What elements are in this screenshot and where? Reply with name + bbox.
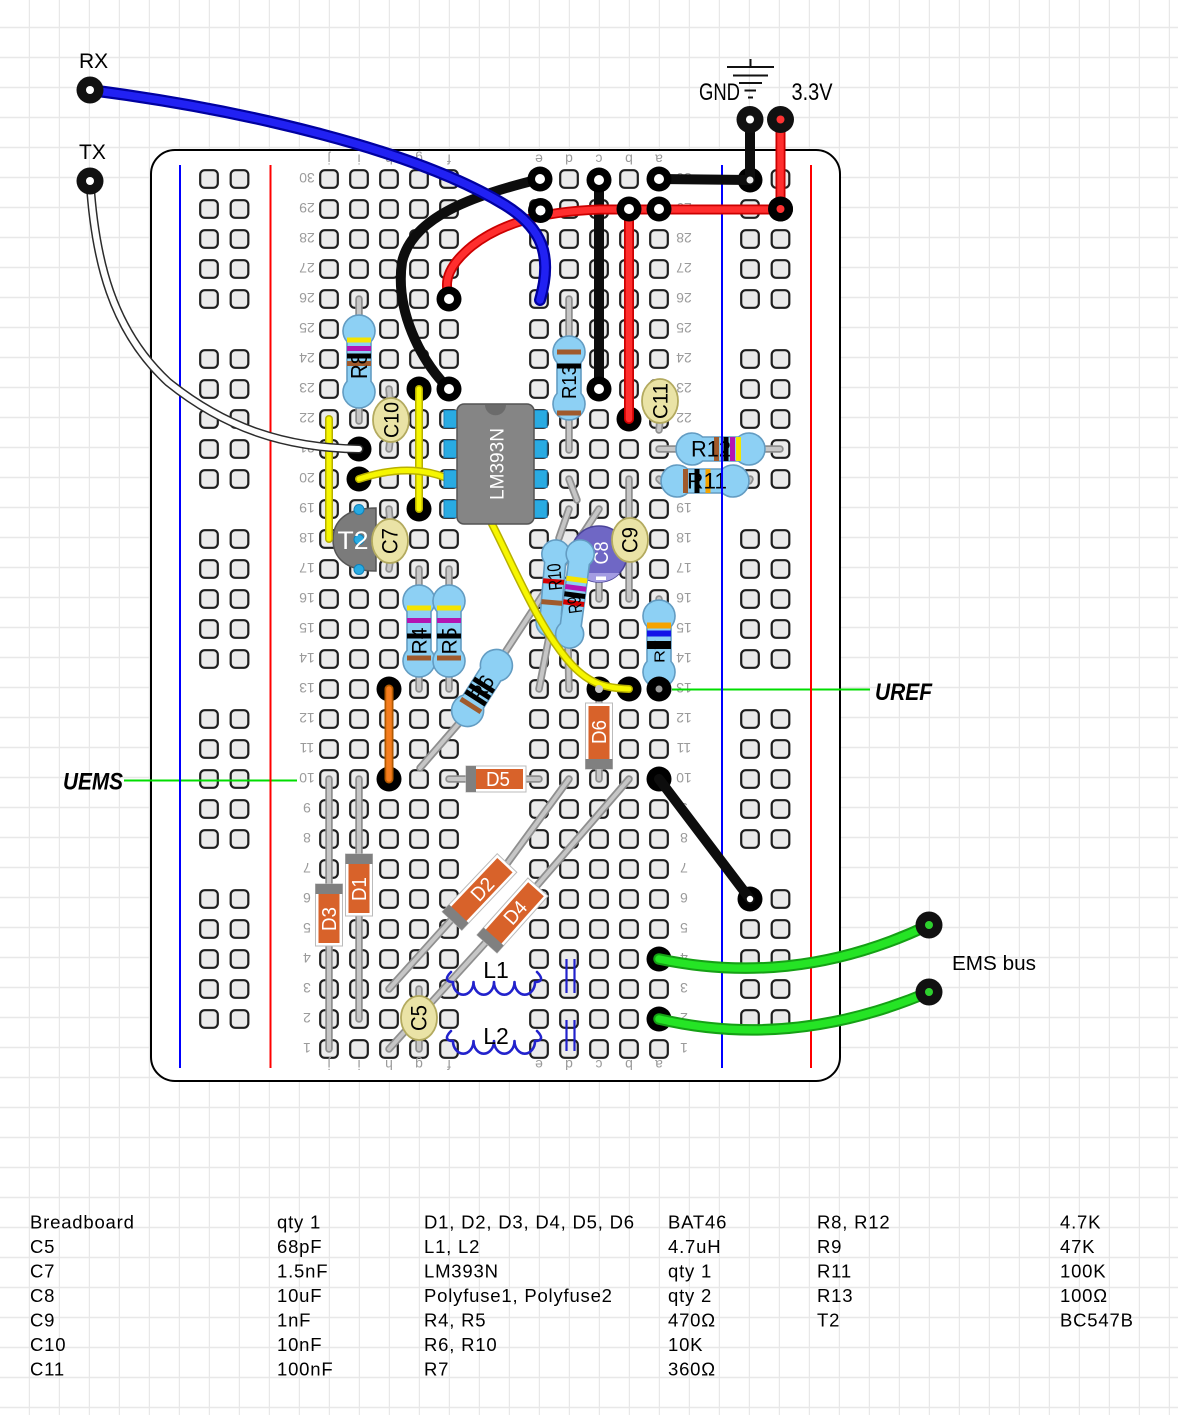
svg-text:c: c [596, 152, 603, 168]
svg-text:C9: C9 [30, 1310, 55, 1331]
svg-text:5: 5 [680, 920, 688, 936]
svg-text:24: 24 [676, 350, 692, 366]
svg-text:5: 5 [303, 920, 311, 936]
svg-text:15: 15 [299, 620, 315, 636]
svg-text:1.5nF: 1.5nF [277, 1261, 328, 1282]
svg-text:C11: C11 [649, 383, 672, 419]
svg-text:b: b [625, 152, 633, 168]
svg-text:h: h [385, 1057, 393, 1073]
svg-text:30: 30 [299, 170, 315, 186]
svg-text:e: e [535, 152, 543, 168]
svg-text:Breadboard: Breadboard [30, 1212, 135, 1233]
svg-text:68pF: 68pF [277, 1236, 322, 1257]
svg-text:R13: R13 [817, 1285, 853, 1306]
svg-text:16: 16 [299, 590, 315, 606]
svg-text:d: d [565, 152, 573, 168]
svg-text:T2: T2 [338, 527, 369, 555]
svg-text:f: f [447, 1057, 451, 1073]
svg-text:13: 13 [299, 680, 315, 696]
svg-text:c: c [596, 1057, 603, 1073]
svg-text:8: 8 [303, 830, 311, 846]
svg-text:3.3V: 3.3V [792, 79, 833, 106]
svg-text:qty 1: qty 1 [277, 1212, 321, 1233]
svg-text:3: 3 [303, 980, 311, 996]
svg-text:4.7K: 4.7K [1060, 1212, 1101, 1233]
svg-text:R7: R7 [651, 640, 668, 663]
svg-text:D5: D5 [486, 769, 510, 791]
svg-text:R5: R5 [438, 628, 461, 655]
svg-text:6: 6 [680, 890, 688, 906]
svg-text:UREF: UREF [875, 679, 933, 706]
svg-text:10K: 10K [668, 1334, 703, 1355]
svg-text:23: 23 [676, 380, 692, 396]
svg-text:R10: R10 [544, 563, 567, 592]
svg-text:19: 19 [299, 500, 315, 516]
svg-text:GND: GND [699, 79, 740, 106]
svg-text:100nF: 100nF [277, 1359, 333, 1380]
svg-text:j: j [327, 152, 331, 168]
svg-text:RX: RX [79, 50, 108, 73]
svg-text:4: 4 [303, 950, 311, 966]
svg-text:11: 11 [300, 740, 315, 756]
svg-text:10: 10 [676, 770, 692, 786]
svg-text:24: 24 [299, 350, 315, 366]
svg-text:28: 28 [676, 230, 692, 246]
svg-text:1: 1 [303, 1040, 311, 1056]
svg-text:T2: T2 [817, 1310, 840, 1331]
svg-text:qty 1: qty 1 [668, 1261, 712, 1282]
svg-text:10: 10 [299, 770, 315, 786]
svg-text:22: 22 [676, 410, 692, 426]
svg-text:27: 27 [676, 260, 692, 276]
svg-text:j: j [327, 1057, 331, 1073]
svg-text:D1, D2, D3, D4, D5, D6: D1, D2, D3, D4, D5, D6 [424, 1212, 635, 1233]
svg-text:13: 13 [676, 680, 692, 696]
svg-text:qty 2: qty 2 [668, 1285, 712, 1306]
svg-text:14: 14 [299, 650, 315, 666]
svg-text:LM393N: LM393N [424, 1261, 499, 1282]
svg-text:17: 17 [676, 560, 692, 576]
svg-text:7: 7 [680, 860, 688, 876]
svg-text:27: 27 [299, 260, 315, 276]
svg-text:C10: C10 [380, 402, 403, 438]
svg-text:C9: C9 [618, 527, 643, 553]
svg-text:BAT46: BAT46 [668, 1212, 727, 1233]
svg-text:26: 26 [676, 290, 692, 306]
svg-text:7: 7 [303, 860, 311, 876]
svg-text:25: 25 [299, 320, 315, 336]
svg-text:1nF: 1nF [277, 1310, 311, 1331]
svg-text:R8, R12: R8, R12 [817, 1212, 890, 1233]
svg-text:LM393N: LM393N [488, 428, 509, 500]
svg-text:C10: C10 [30, 1334, 66, 1355]
svg-text:20: 20 [299, 470, 315, 486]
svg-text:L1, L2: L1, L2 [424, 1236, 480, 1257]
svg-text:C7: C7 [378, 528, 403, 554]
svg-text:C7: C7 [30, 1261, 55, 1282]
svg-text:19: 19 [676, 500, 692, 516]
svg-text:100Ω: 100Ω [1060, 1285, 1108, 1306]
svg-text:2: 2 [303, 1010, 311, 1026]
svg-text:18: 18 [676, 530, 692, 546]
svg-text:R6, R10: R6, R10 [424, 1334, 497, 1355]
svg-text:100K: 100K [1060, 1261, 1106, 1282]
svg-text:a: a [655, 1057, 663, 1073]
svg-text:C5: C5 [407, 1005, 432, 1031]
svg-text:R9: R9 [564, 595, 587, 615]
svg-text:360Ω: 360Ω [668, 1359, 716, 1380]
svg-text:R13: R13 [559, 365, 581, 399]
svg-text:18: 18 [299, 530, 315, 546]
svg-text:3: 3 [680, 980, 688, 996]
svg-text:e: e [535, 1057, 543, 1073]
svg-text:UEMS: UEMS [63, 769, 123, 796]
svg-text:a: a [655, 152, 663, 168]
svg-text:EMS bus: EMS bus [952, 953, 1036, 975]
svg-text:47K: 47K [1060, 1236, 1095, 1257]
svg-text:9: 9 [303, 800, 311, 816]
svg-text:R4, R5: R4, R5 [424, 1310, 486, 1331]
svg-text:R4: R4 [408, 627, 431, 654]
svg-text:22: 22 [299, 410, 315, 426]
svg-text:L1: L1 [483, 957, 509, 983]
svg-text:26: 26 [299, 290, 315, 306]
svg-text:14: 14 [676, 650, 692, 666]
svg-text:d: d [565, 1057, 573, 1073]
svg-text:R8: R8 [346, 353, 372, 379]
svg-text:10uF: 10uF [277, 1285, 322, 1306]
svg-text:16: 16 [676, 590, 692, 606]
svg-text:R9: R9 [817, 1236, 842, 1257]
svg-text:23: 23 [299, 380, 315, 396]
svg-text:28: 28 [299, 230, 315, 246]
svg-text:12: 12 [676, 710, 692, 726]
svg-text:L2: L2 [483, 1023, 509, 1049]
svg-text:Polyfuse1, Polyfuse2: Polyfuse1, Polyfuse2 [424, 1285, 613, 1306]
svg-text:C8: C8 [30, 1285, 55, 1306]
svg-text:b: b [625, 1057, 633, 1073]
svg-text:6: 6 [303, 890, 311, 906]
svg-text:g: g [415, 1057, 423, 1073]
svg-text:C5: C5 [30, 1236, 55, 1257]
svg-text:TX: TX [79, 141, 106, 164]
svg-text:11: 11 [677, 740, 692, 756]
svg-text:D3: D3 [319, 907, 341, 931]
svg-text:R7: R7 [424, 1359, 449, 1380]
svg-text:1: 1 [680, 1040, 688, 1056]
svg-text:R11: R11 [817, 1261, 852, 1282]
svg-text:BC547B: BC547B [1060, 1310, 1134, 1331]
svg-text:470Ω: 470Ω [668, 1310, 716, 1331]
svg-text:29: 29 [299, 200, 315, 216]
svg-text:D1: D1 [349, 877, 371, 901]
svg-text:15: 15 [676, 620, 692, 636]
svg-text:i: i [357, 1057, 360, 1073]
svg-text:12: 12 [299, 710, 315, 726]
svg-text:8: 8 [680, 830, 688, 846]
svg-text:17: 17 [299, 560, 315, 576]
svg-text:f: f [447, 152, 451, 168]
svg-text:4.7uH: 4.7uH [668, 1236, 721, 1257]
svg-text:25: 25 [676, 320, 692, 336]
svg-text:10nF: 10nF [277, 1334, 322, 1355]
svg-text:D6: D6 [589, 720, 611, 744]
svg-text:i: i [357, 152, 360, 168]
svg-text:R12: R12 [691, 437, 731, 462]
svg-text:C11: C11 [30, 1359, 65, 1380]
